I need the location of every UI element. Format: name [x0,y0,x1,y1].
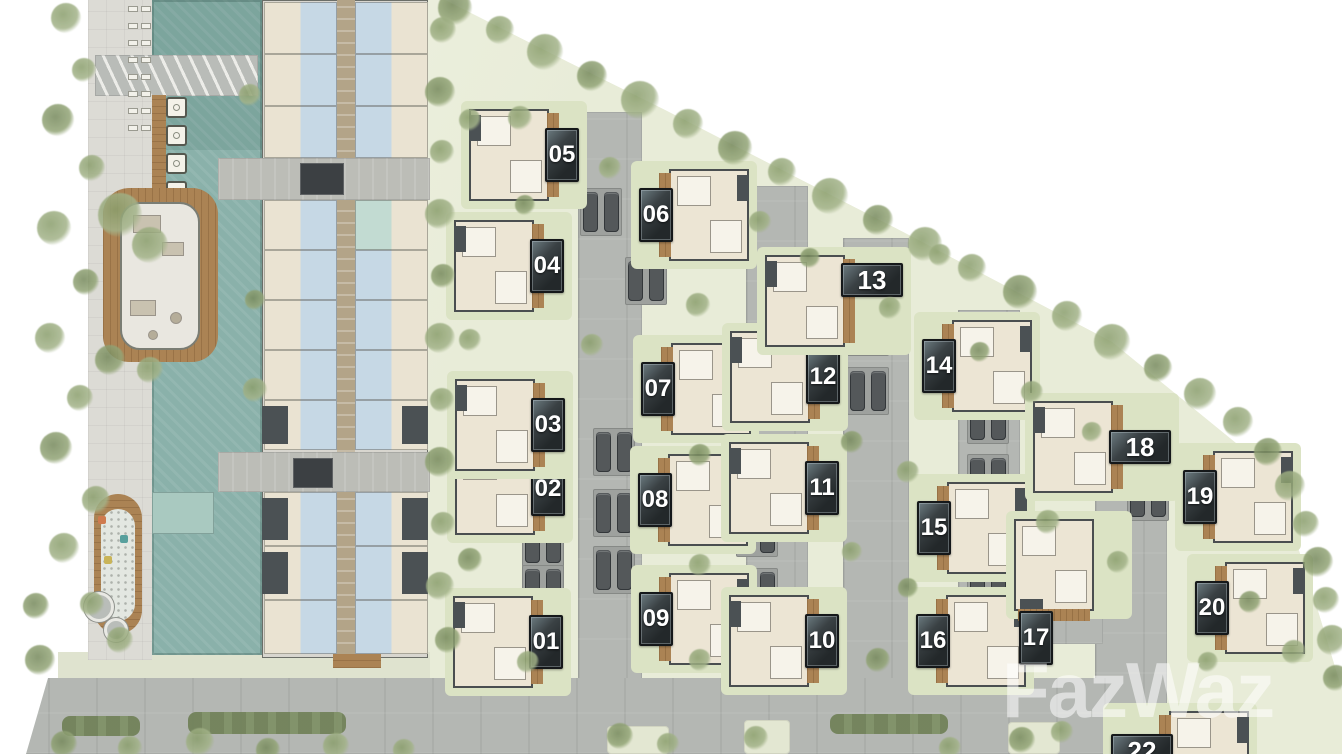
tree-icon [51,3,81,33]
condo-unit [355,350,428,400]
parking-stall [596,493,611,533]
sun-lounger [141,40,151,46]
condo-unit [355,2,428,54]
sun-lounger [141,23,151,29]
tree-icon [458,548,482,572]
tree-icon [800,248,820,268]
sun-lounger [141,91,151,97]
entry-crosswalk [95,55,258,96]
hedge [62,716,140,736]
parking-stall [596,432,611,472]
sun-lounger [128,74,138,80]
condo-roof-tab [262,406,288,444]
sun-lounger [141,74,151,80]
cabana [166,153,187,174]
cabana [166,97,187,118]
unit-plot-06[interactable]: 06 [639,188,673,242]
lift-core [293,458,333,488]
condo-unit [264,106,337,158]
tree-icon [426,572,454,600]
tree-icon [98,193,142,237]
tree-icon [186,728,214,754]
play-feature [104,556,112,564]
tree-icon [1094,324,1130,360]
unit-plot-07[interactable]: 07 [641,362,675,416]
sun-lounger [128,125,138,131]
tree-icon [459,329,481,351]
villa-room [496,494,528,527]
condo-unit [355,300,428,350]
villa-garage-roof [1033,407,1045,433]
unit-plot-08[interactable]: 08 [638,473,672,527]
tree-icon [1021,381,1043,403]
villa-garage-roof [455,385,467,411]
villa-room [773,262,807,292]
tree-icon [879,297,901,319]
tree-icon [863,205,893,235]
villa-room [955,489,989,519]
tree-icon [430,388,454,412]
tree-icon [673,109,703,139]
sun-lounger [128,57,138,63]
villa-footprint [765,255,845,347]
villa-garage-roof [730,337,742,363]
unit-plot-11[interactable]: 11 [805,461,839,515]
hedge [188,712,346,734]
tree-icon [581,334,603,356]
villa-room [1254,502,1286,535]
tree-icon [897,461,919,483]
tree-icon [49,533,79,563]
tree-icon [958,254,986,282]
tree-icon [749,211,771,233]
tree-icon [425,447,455,477]
tree-icon [42,104,74,136]
unit-plot-05[interactable]: 05 [545,128,579,182]
villa-garage-roof [1020,326,1032,352]
villa-room [1055,570,1087,603]
tree-icon [245,290,265,310]
villa-room [676,461,710,491]
tree-icon [51,731,77,754]
unit-plot-15[interactable]: 15 [917,501,951,555]
villa-room [1074,452,1106,485]
tree-icon [430,140,454,164]
villa-garage-roof [1293,568,1305,594]
tree-icon [527,34,563,70]
villa-room [710,220,742,253]
cabana [166,125,187,146]
tree-icon [1317,625,1342,655]
tree-icon [768,158,796,186]
condo-roof-tab [402,552,428,594]
tree-icon [812,178,848,214]
villa-garage-roof [737,175,749,201]
villa-garage-roof [729,448,741,474]
sun-lounger [141,108,151,114]
sun-lounger [128,40,138,46]
tree-icon [898,578,918,598]
villa-room [771,382,803,415]
tree-icon [599,157,621,179]
tree-icon [1223,407,1253,437]
parking-stall [596,550,611,590]
villa-room [1221,458,1255,488]
villa-room [737,449,771,479]
tree-icon [842,542,862,562]
tree-icon [866,648,890,672]
villa-footprint [669,169,749,261]
clubhouse-furniture [148,330,158,340]
villa-room [770,646,802,679]
condo-unit [355,250,428,300]
condo-roof-tab [262,552,288,594]
condo-unit [355,106,428,158]
play-feature [98,516,106,524]
tree-icon [67,385,93,411]
villa-garage-roof [454,226,466,252]
tree-icon [73,269,99,295]
tree-icon [82,486,110,514]
tree-icon [1107,551,1129,573]
lift-core [300,163,344,195]
tree-icon [1082,422,1102,442]
condo-unit [355,200,428,250]
unit-plot-14[interactable]: 14 [922,339,956,393]
tree-icon [517,651,539,673]
unit-plot-16[interactable]: 16 [916,614,950,668]
villa-room [677,580,711,610]
tree-icon [25,645,55,675]
villa-room [463,386,497,416]
tree-icon [689,444,711,466]
tree-icon [689,649,711,671]
unit-plot-09[interactable]: 09 [639,592,673,646]
sun-lounger [141,6,151,12]
condo-unit [264,250,337,300]
condo-unit [264,2,337,54]
villa-room [677,176,711,206]
unit-plot-04[interactable]: 04 [530,239,564,293]
sun-lounger [128,23,138,29]
tree-icon [515,195,535,215]
tree-icon [393,739,415,754]
villa-room [461,603,495,633]
villa-room [737,602,771,632]
clubhouse-furniture [170,312,182,324]
tree-icon [425,323,455,353]
tree-icon [243,378,267,402]
tree-icon [718,131,752,165]
tree-icon [435,627,461,653]
villa-footprint [1033,401,1113,493]
building-entry-deck [333,654,381,668]
tree-icon [939,737,961,754]
tree-icon [689,554,711,576]
tree-icon [37,211,71,245]
play-feature [120,535,128,543]
tree-icon [95,345,125,375]
sun-lounger [128,91,138,97]
unit-plot-12[interactable]: 12 [806,350,840,404]
tree-icon [137,357,163,383]
tree-icon [1052,301,1082,331]
villa-footprint [454,220,534,312]
condo-roof-tab [402,498,428,540]
site-plan: 0102030405060708091011121314151617181920… [0,0,1342,754]
condo-roof-tab [402,406,428,444]
tree-icon [23,593,49,619]
tree-icon [1184,378,1216,410]
unit-plot-03[interactable]: 03 [531,398,565,452]
tree-icon [459,109,481,131]
condo-unit [264,600,337,654]
hedge [830,714,948,734]
condo-unit [355,54,428,106]
sun-lounger [141,125,151,131]
villa-footprint [729,442,809,534]
tree-icon [657,733,679,754]
tree-icon [425,77,455,107]
tree-icon [686,293,710,317]
tree-icon [607,723,633,749]
tree-icon [1036,510,1060,534]
villa-footprint [729,595,809,687]
kids-pool [152,492,214,534]
villa-room [806,306,838,339]
watermark: FazWaz [1002,645,1273,736]
tree-icon [1003,275,1037,309]
tree-icon [107,627,133,653]
villa-room [462,227,496,257]
villa-garage-roof [453,602,465,628]
tree-icon [744,726,768,750]
unit-plot-22[interactable]: 22 [1111,734,1173,754]
tree-icon [35,323,65,353]
parking-stall [617,550,632,590]
villa-footprint [455,379,535,471]
unit-plot-13[interactable]: 13 [841,263,903,297]
tree-icon [1254,438,1282,466]
sun-lounger [141,57,151,63]
villa-room [1041,408,1075,438]
tree-icon [929,244,951,266]
sun-lounger [128,6,138,12]
clubhouse-furniture [130,300,156,316]
tree-icon [323,733,349,754]
villa-room [679,350,713,380]
villa-footprint [453,596,533,688]
villa-room [496,430,528,463]
tree-icon [1323,665,1342,691]
unit-plot-18[interactable]: 18 [1109,430,1171,464]
condo-unit [355,600,428,654]
villa-room [510,160,542,193]
tree-icon [40,432,72,464]
villa-room [993,371,1025,404]
tree-icon [425,199,455,229]
tree-icon [621,81,659,119]
tree-icon [79,155,105,181]
sun-lounger [128,108,138,114]
tree-icon [72,58,96,82]
parking-stall [604,192,619,232]
tree-icon [1303,547,1333,577]
pool-deck [152,95,166,191]
tree-icon [577,61,607,91]
villa-garage-roof [765,261,777,287]
condo-corridor [337,0,355,656]
tree-icon [1275,471,1305,501]
villa-room [495,271,527,304]
unit-plot-20[interactable]: 20 [1195,581,1229,635]
tree-icon [1239,591,1261,613]
tree-icon [970,342,990,362]
tree-icon [430,17,456,43]
villa-room [770,493,802,526]
condo-unit [264,54,337,106]
tree-icon [841,431,863,453]
condo-unit [264,300,337,350]
tree-icon [1282,640,1306,664]
parking-stall [871,371,886,411]
unit-plot-19[interactable]: 19 [1183,470,1217,524]
tree-icon [239,84,261,106]
tree-icon [431,512,455,536]
tree-icon [1313,587,1339,613]
tree-icon [486,16,514,44]
tree-icon [1144,354,1172,382]
tree-icon [118,736,142,754]
tree-icon [1293,511,1319,537]
unit-plot-10[interactable]: 10 [805,614,839,668]
tree-icon [80,592,104,616]
villa-room [477,116,511,146]
condo-roof-tab [262,498,288,540]
tree-icon [431,264,455,288]
villa-footprint [952,320,1032,412]
villa-footprint [1014,519,1094,611]
condo-unit [264,200,337,250]
tree-icon [508,106,532,130]
tree-icon [132,227,168,263]
parking-stall [850,371,865,411]
villa-garage-roof [729,601,741,627]
villa-room [954,602,988,632]
condo-unit [264,350,337,400]
